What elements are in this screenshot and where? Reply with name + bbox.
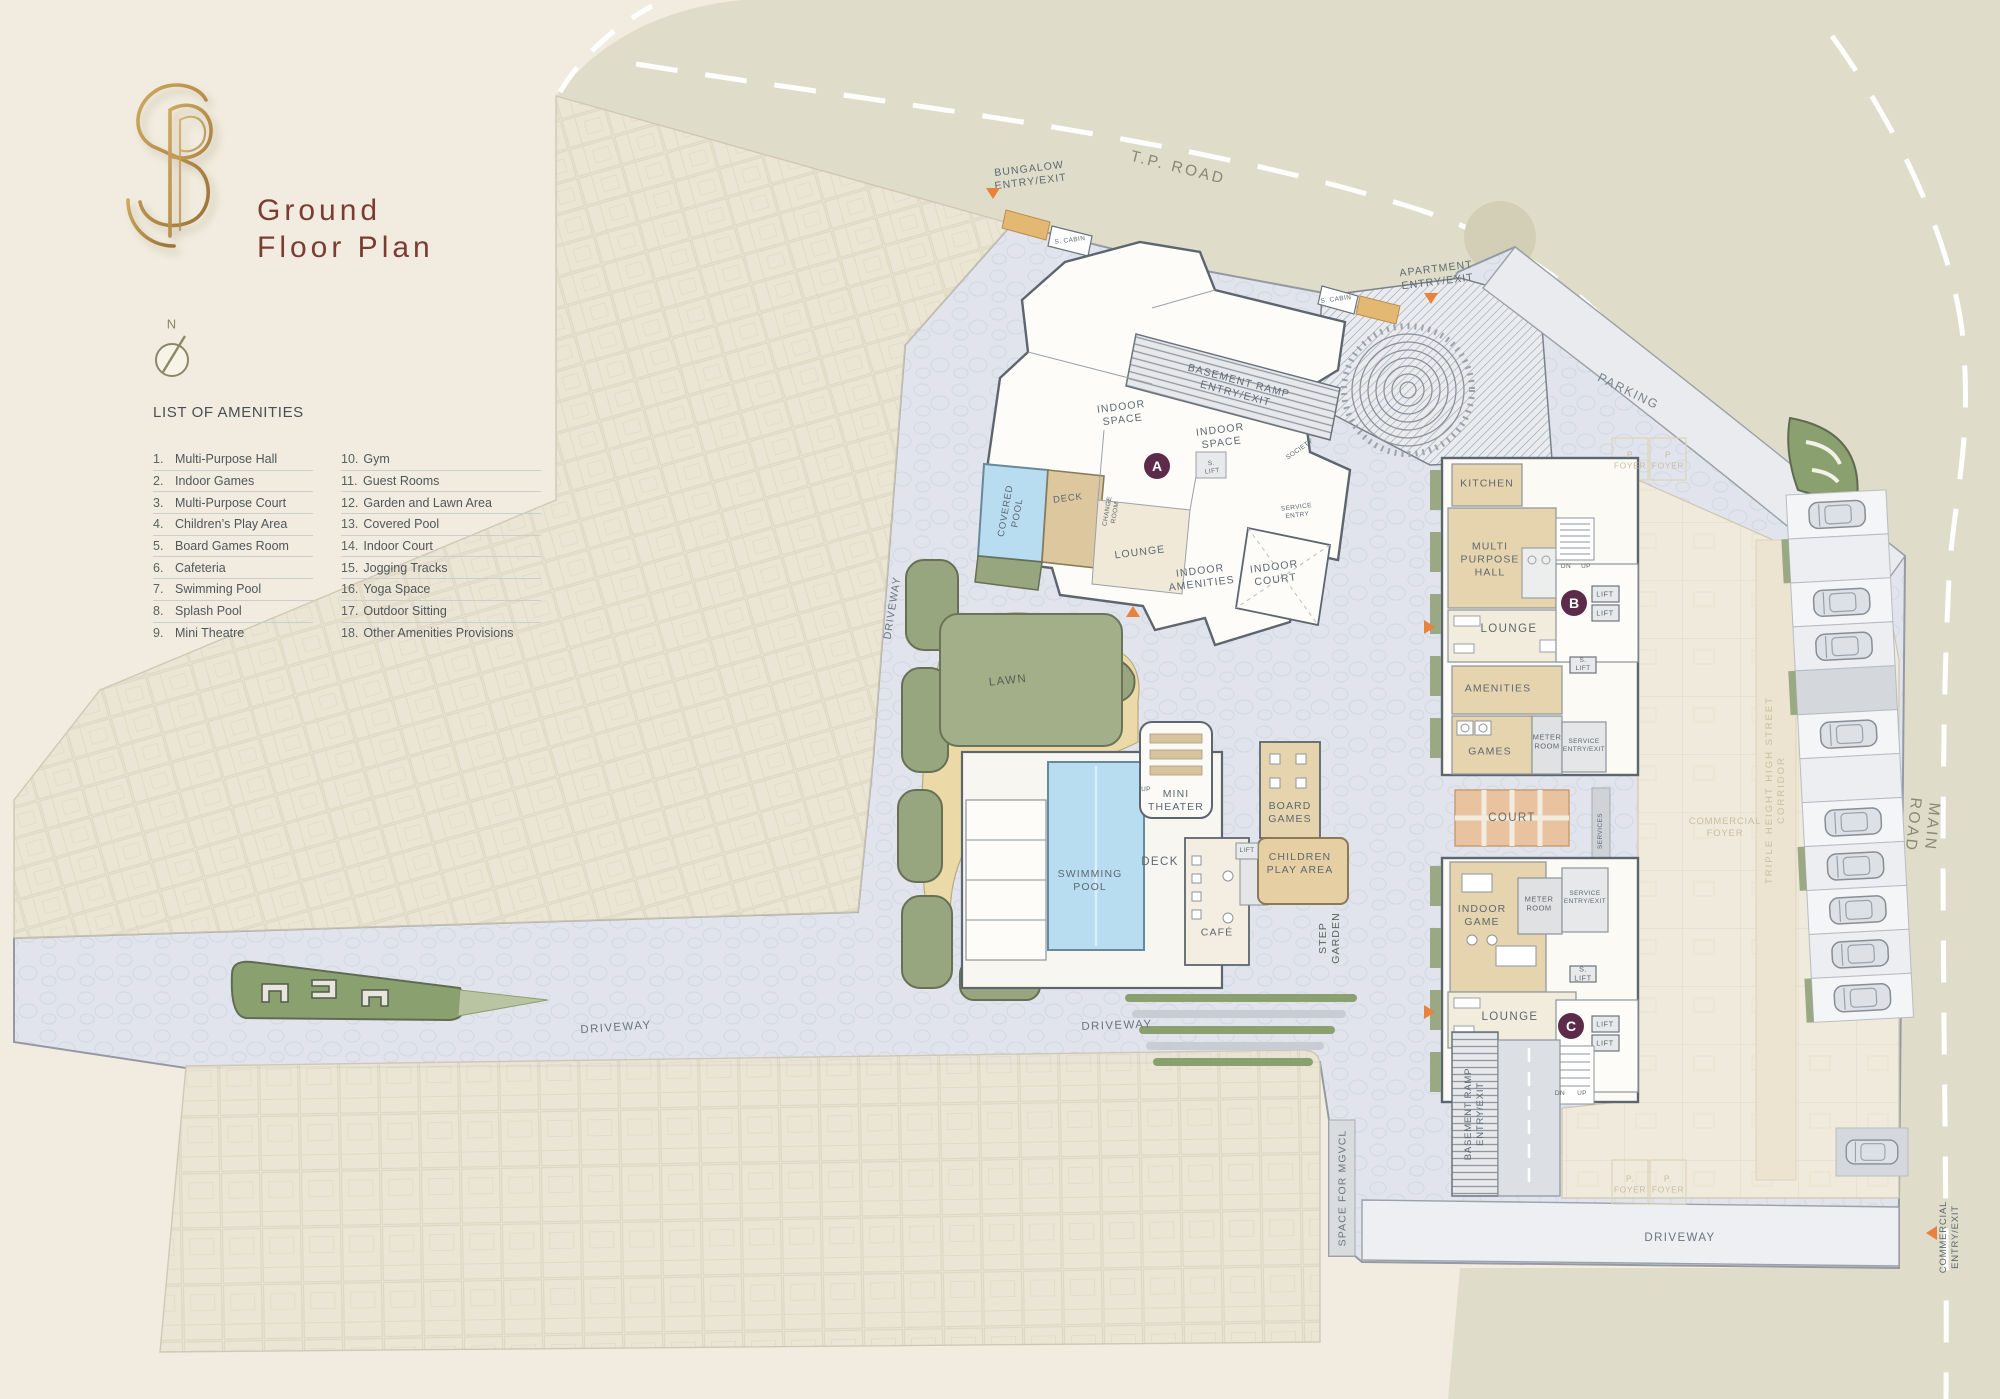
label-b-mph: MULTI PURPOSE HALL: [1460, 540, 1519, 579]
list-item: 1.Multi-Purpose Hall: [153, 449, 313, 471]
commercial-entry-marker: [1926, 1226, 1937, 1240]
label-b-dn: DN: [1561, 563, 1571, 571]
label-c-dn: DN: [1555, 1090, 1565, 1098]
building-b-badge: B: [1561, 590, 1587, 616]
label-b-amenities: AMENITIES: [1465, 682, 1532, 695]
list-item: 18.Other Amenities Provisions: [341, 623, 541, 644]
building-c-entry-marker: [1424, 1005, 1435, 1019]
label-step-garden: STEP GARDEN: [1317, 912, 1343, 964]
list-item: 13.Covered Pool: [341, 514, 541, 536]
list-item: 12.Garden and Lawn Area: [341, 492, 541, 514]
amenities-column-2: 10.Gym 11.Guest Rooms 12.Garden and Lawn…: [341, 449, 541, 643]
page-title-line1: Ground: [257, 192, 434, 229]
label-b-games: GAMES: [1468, 745, 1511, 758]
list-item: 14.Indoor Court: [341, 536, 541, 558]
label-cafe: CAFÉ: [1201, 926, 1233, 939]
page-title-line2: Floor Plan: [257, 229, 434, 266]
label-main-road: MAIN ROAD: [1899, 785, 1946, 867]
amenities-column-1: 1.Multi-Purpose Hall 2.Indoor Games 3.Mu…: [153, 449, 313, 643]
label-c-s-lift: S. LIFT: [1574, 965, 1591, 984]
list-item: 2.Indoor Games: [153, 471, 313, 493]
building-c-badge: C: [1558, 1013, 1584, 1039]
label-children-play: CHILDREN PLAY AREA: [1267, 851, 1334, 877]
label-b-meter-room: METER ROOM: [1533, 733, 1562, 752]
list-item: 9.Mini Theatre: [153, 623, 313, 644]
label-c-indoor-game: INDOOR GAME: [1458, 903, 1507, 929]
label-space-mgvcl: SPACE FOR MGVCL: [1336, 1130, 1349, 1247]
label-mini-theater: MINI THEATER: [1148, 788, 1204, 814]
list-item: 4.Children’s Play Area: [153, 514, 313, 536]
label-c-meter-room: METER ROOM: [1525, 895, 1554, 914]
list-item: 7.Swimming Pool: [153, 579, 313, 601]
lawn-area: [940, 614, 1122, 746]
label-up-theater: UP: [1141, 786, 1151, 794]
label-b-kitchen: KITCHEN: [1460, 477, 1514, 490]
compass-north-label: N: [167, 317, 177, 332]
label-b-p-foyer-2: P FOYER: [1652, 449, 1684, 470]
label-b-up: UP: [1581, 563, 1591, 571]
list-item: 15.Jogging Tracks: [341, 557, 541, 579]
label-c-p-foyer-2: P. FOYER: [1652, 1173, 1684, 1194]
list-item: 16.Yoga Space: [341, 579, 541, 601]
label-c-lift-1: LIFT: [1596, 1019, 1613, 1028]
list-item: 10.Gym: [341, 449, 541, 471]
label-lift-central: LIFT: [1240, 847, 1255, 855]
building-a-badge: A: [1144, 453, 1170, 479]
brand-logo: [128, 85, 211, 246]
label-c-basement-ramp: BASEMENT RAMP ENTRY/EXIT: [1463, 1068, 1487, 1161]
label-services: SERVICES: [1597, 813, 1605, 849]
label-commercial-foyer: COMMERCIAL FOYER: [1689, 816, 1761, 840]
label-c-up: UP: [1577, 1090, 1587, 1098]
compass-icon: [156, 336, 188, 376]
label-court: COURT: [1488, 811, 1536, 825]
label-commercial-entry: COMMERCIAL ENTRY/EXIT: [1938, 1201, 1962, 1273]
label-deck-central: DECK: [1141, 855, 1179, 869]
label-b-service-entry: SERVICE ENTRY/EXIT: [1563, 738, 1605, 754]
label-b-lift-2: LIFT: [1596, 608, 1613, 617]
list-item: 3.Multi-Purpose Court: [153, 492, 313, 514]
label-c-lift-2: LIFT: [1596, 1038, 1613, 1047]
list-item: 17.Outdoor Sitting: [341, 601, 541, 623]
building-b-entry-marker: [1424, 620, 1435, 634]
label-b-lift-1: LIFT: [1596, 589, 1613, 598]
building-a-entry-marker: [1126, 606, 1140, 617]
label-b-p-foyer-1: P FOYER: [1614, 449, 1646, 470]
label-swimming-pool: SWIMMING POOL: [1058, 868, 1123, 894]
bungalow-entry-marker: [986, 188, 1000, 199]
label-c-p-foyer-1: P. FOYER: [1614, 1173, 1646, 1194]
label-a-s-lift: S. LIFT: [1204, 459, 1221, 477]
list-item: 6.Cafeteria: [153, 557, 313, 579]
bungalow-row-south: [160, 1050, 1320, 1352]
label-b-lounge: LOUNGE: [1481, 622, 1538, 636]
label-high-street-corridor: TRIPLE HEIGHT HIGH STREET CORRIDOR: [1764, 678, 1788, 902]
list-item: 8.Splash Pool: [153, 601, 313, 623]
ground-floor-plan-page: Ground Floor Plan N LIST OF AMENITIES 1.…: [0, 0, 2000, 1399]
apartment-entry-marker: [1424, 293, 1438, 304]
label-board-games: BOARD GAMES: [1268, 800, 1311, 826]
label-driveway-right: DRIVEWAY: [1644, 1231, 1715, 1245]
label-c-lounge: LOUNGE: [1482, 1010, 1539, 1024]
page-title: Ground Floor Plan: [257, 192, 434, 266]
label-b-s-lift: S. LIFT: [1576, 657, 1591, 673]
list-item: 5.Board Games Room: [153, 536, 313, 558]
amenities-heading: LIST OF AMENITIES: [153, 404, 304, 421]
list-item: 11.Guest Rooms: [341, 471, 541, 493]
label-c-service-entry: SERVICE ENTRY/EXIT: [1564, 890, 1606, 906]
label-driveway-mid: DRIVEWAY: [1081, 1018, 1153, 1035]
driveway-bottom-band: [1362, 1200, 1899, 1266]
